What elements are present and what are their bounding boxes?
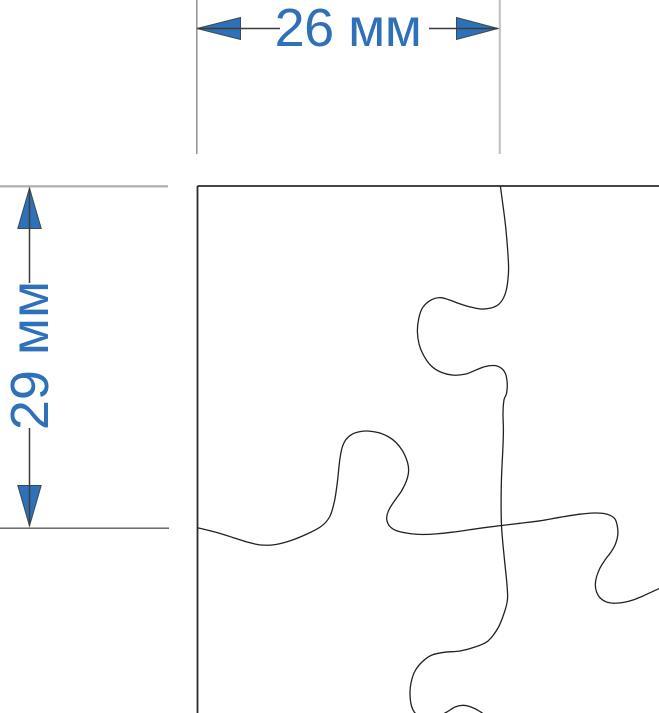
svg-text:29 мм: 29 мм [0,281,60,430]
svg-text:26 мм: 26 мм [275,0,422,58]
